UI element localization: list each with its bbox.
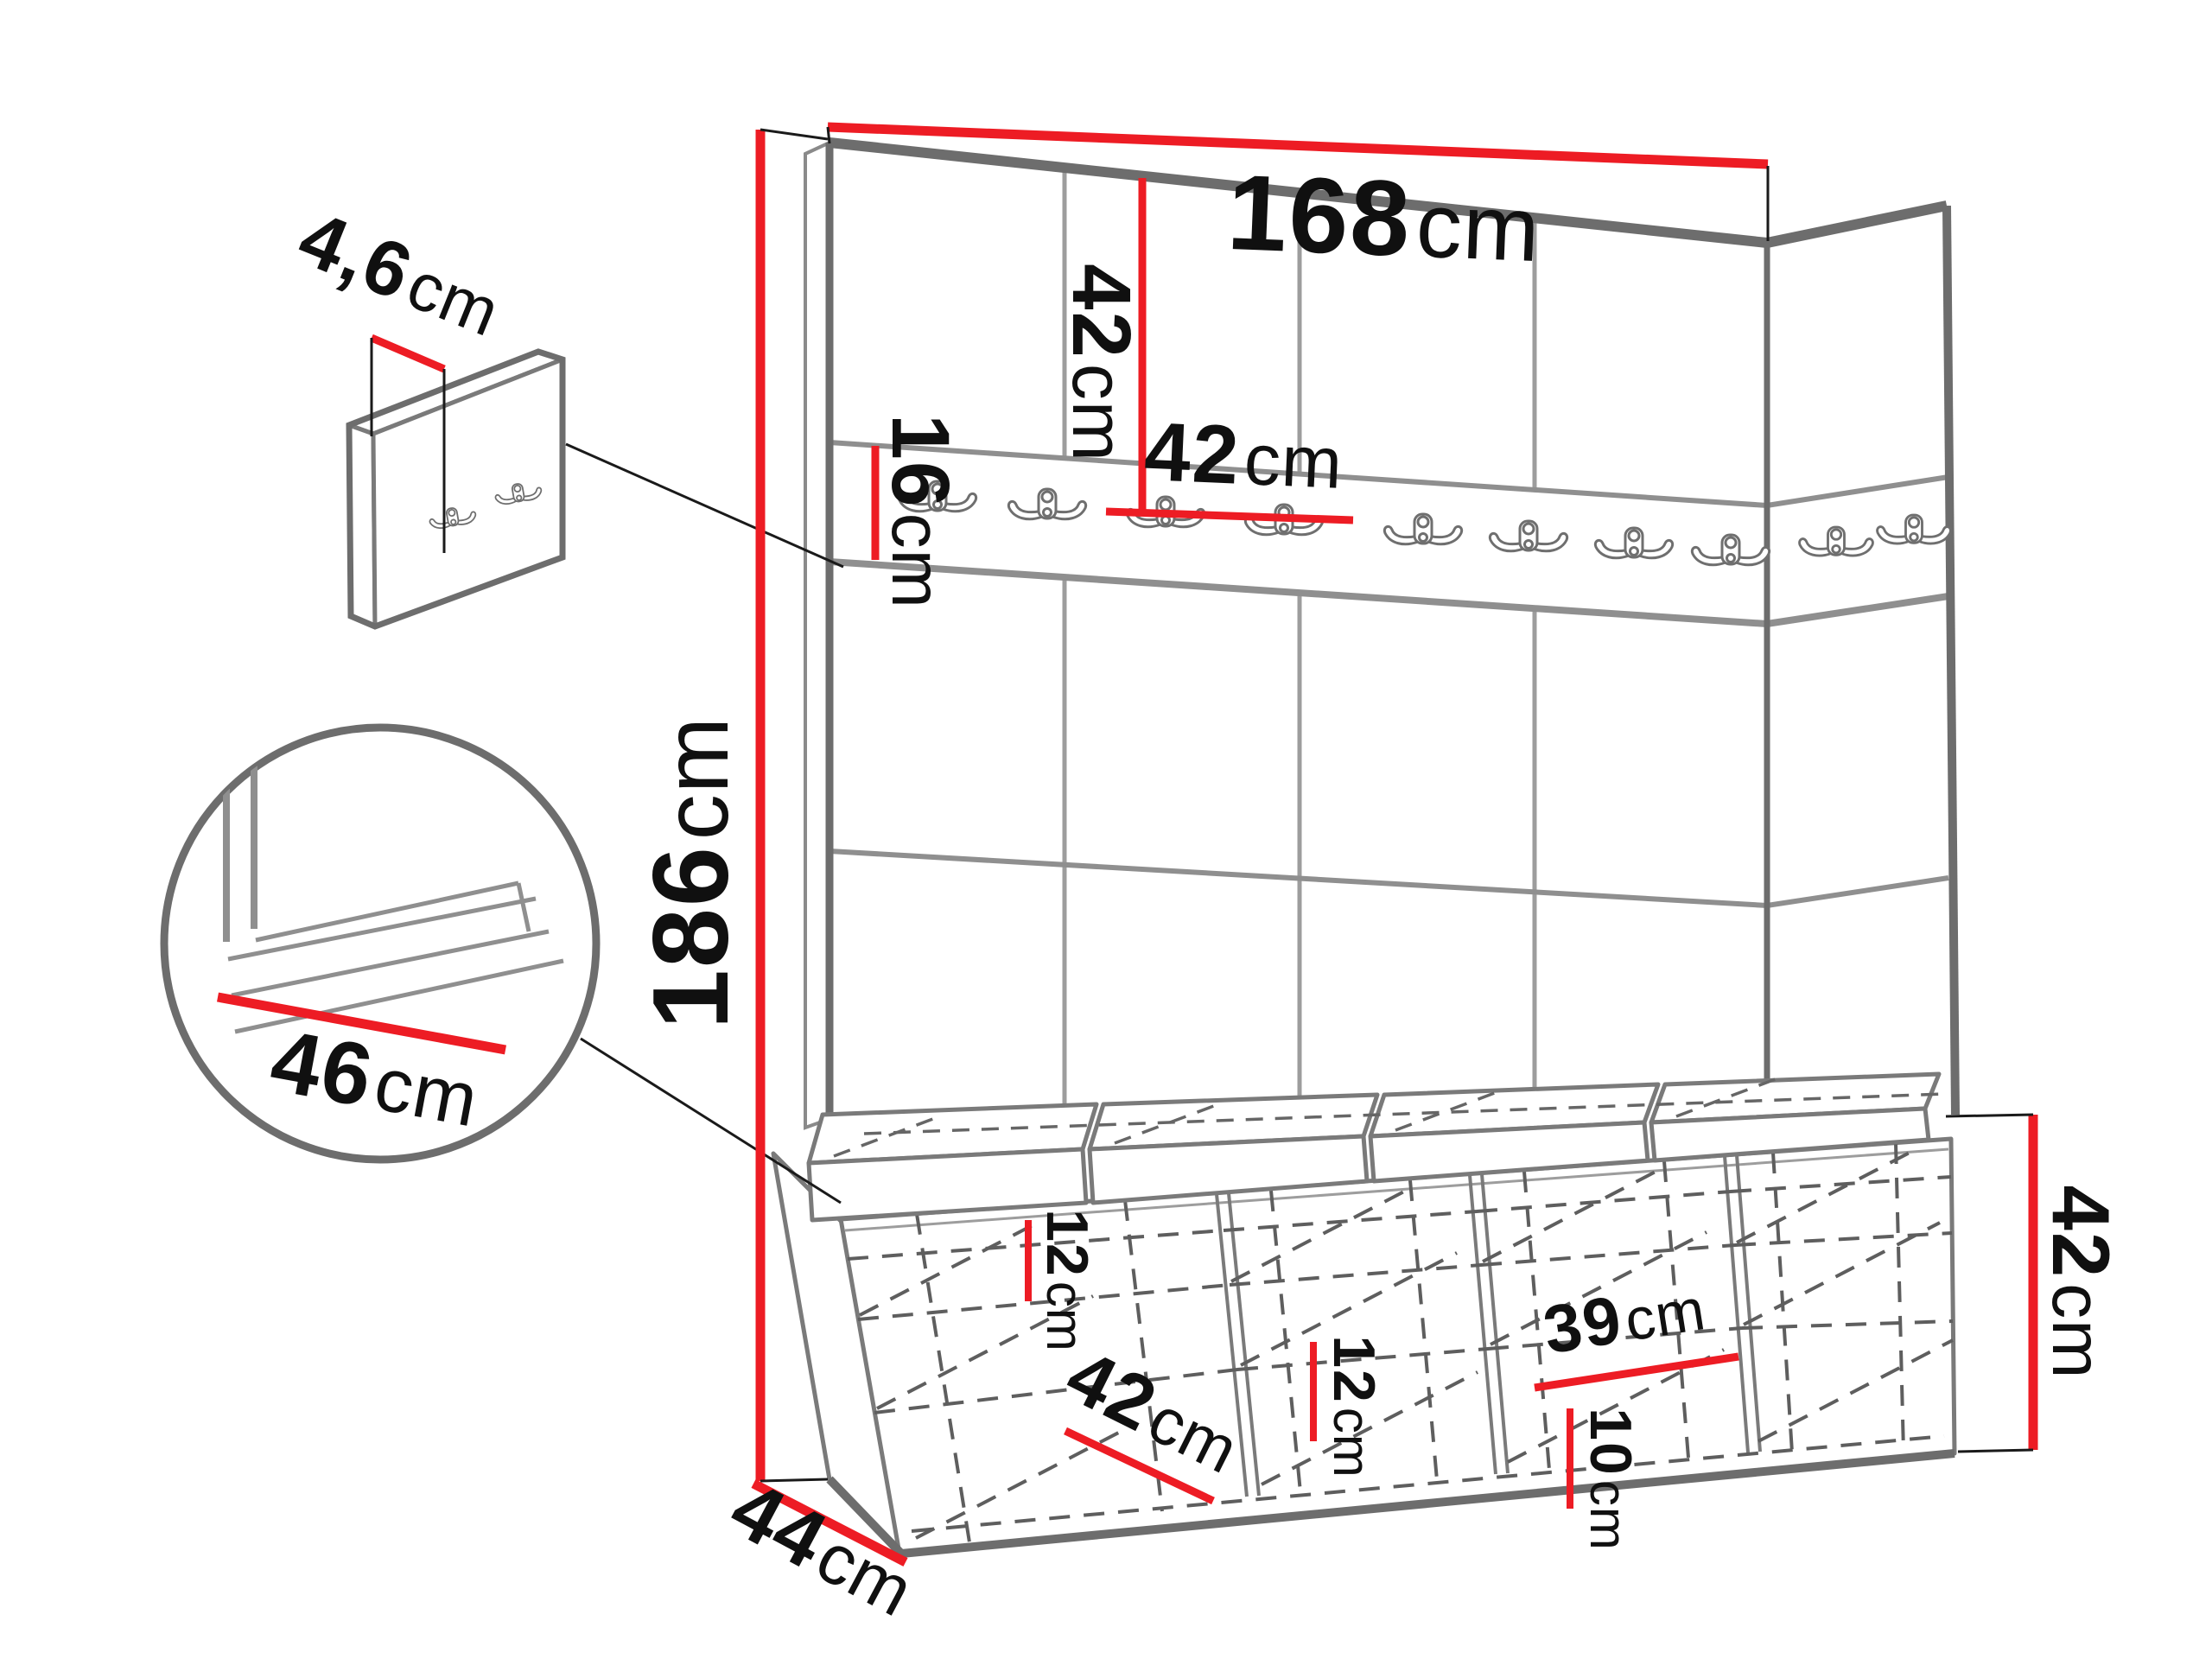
dimension-line	[372, 338, 444, 369]
wall-panels	[805, 143, 1955, 1128]
dimension-label: 42cm	[2036, 1185, 2126, 1380]
dimension-label: 168cm	[1225, 153, 1542, 284]
dimension-label: 4,6cm	[287, 194, 513, 353]
dimension-label: 186cm	[632, 716, 751, 1029]
hook-panel-detail	[349, 352, 843, 626]
dimension-label: 12cm	[1034, 1209, 1100, 1352]
dimension-bench-height: 42cm	[1946, 1115, 2126, 1452]
dimension-right-bottom-gap: 10cm	[1570, 1408, 1643, 1551]
dimension-label: 12cm	[1321, 1335, 1387, 1478]
dimension-label: 42cm	[1055, 264, 1147, 462]
wall-corner-panel	[1767, 206, 1955, 1115]
furniture-dimension-diagram: 168cm 186cm 42cm 42cm 16cm 4,6cm	[0, 0, 2212, 1659]
dimension-left-shelf-gap: 12cm	[1028, 1209, 1100, 1352]
dimension-label: 10cm	[1578, 1408, 1643, 1551]
bench	[773, 1074, 1955, 1554]
detail-callout-line	[581, 1039, 841, 1203]
dimension-middle-shelf-gap: 12cm	[1313, 1335, 1387, 1478]
detail-callout-line	[566, 444, 843, 567]
